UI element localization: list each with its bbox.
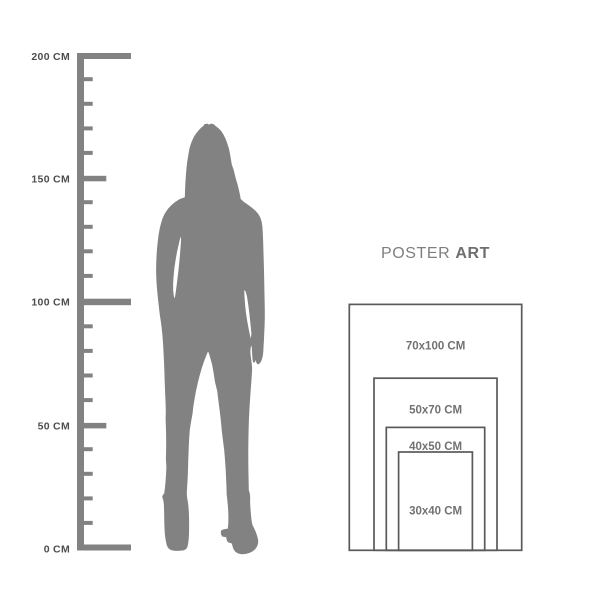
svg-text:POSTER ART: POSTER ART	[381, 245, 490, 262]
svg-text:150 CM: 150 CM	[31, 174, 70, 186]
svg-text:50 CM: 50 CM	[38, 420, 70, 432]
svg-text:30x40 CM: 30x40 CM	[409, 506, 462, 518]
svg-text:100 CM: 100 CM	[31, 297, 70, 309]
svg-text:0 CM: 0 CM	[44, 543, 70, 555]
svg-text:50x70 CM: 50x70 CM	[409, 404, 462, 416]
svg-text:200 CM: 200 CM	[31, 51, 70, 63]
svg-text:70x100 CM: 70x100 CM	[406, 341, 465, 353]
